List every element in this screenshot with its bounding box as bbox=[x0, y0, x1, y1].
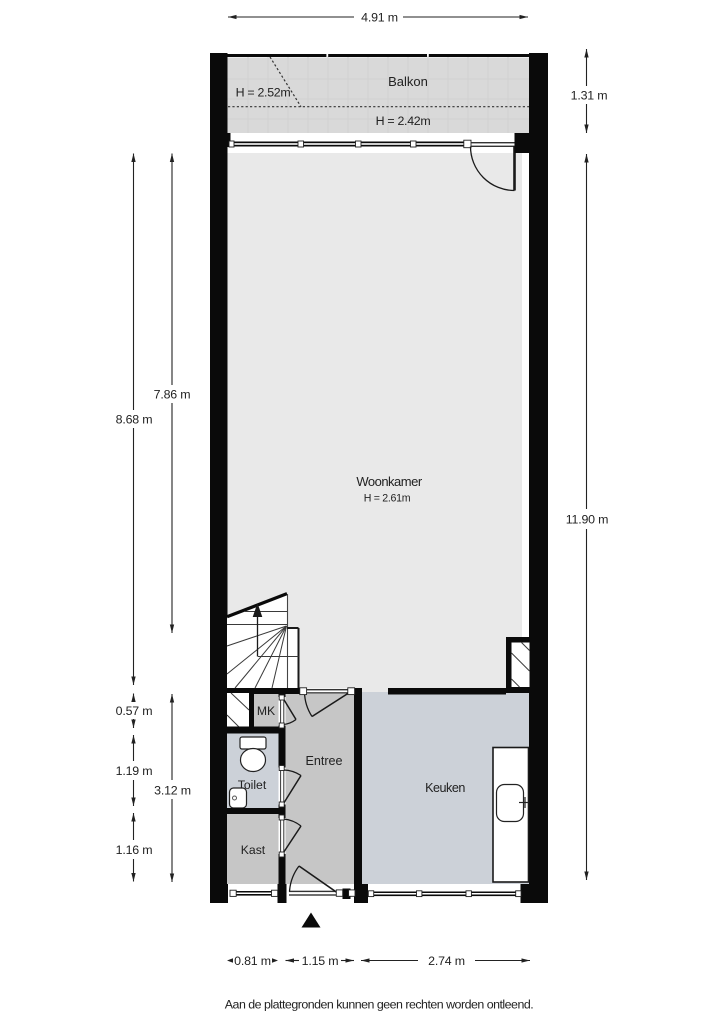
svg-text:7.86 m: 7.86 m bbox=[154, 387, 191, 401]
svg-text:Keuken: Keuken bbox=[425, 781, 465, 795]
svg-text:H = 2.61m: H = 2.61m bbox=[364, 492, 411, 504]
svg-text:H = 2.52m: H = 2.52m bbox=[236, 86, 291, 100]
svg-text:11.90 m: 11.90 m bbox=[566, 512, 608, 526]
svg-text:4.91 m: 4.91 m bbox=[361, 10, 398, 24]
svg-text:Entree: Entree bbox=[305, 754, 342, 768]
svg-text:MK: MK bbox=[257, 704, 275, 718]
svg-text:Woonkamer: Woonkamer bbox=[356, 474, 423, 489]
svg-text:2.74 m: 2.74 m bbox=[428, 954, 465, 968]
svg-text:1.15 m: 1.15 m bbox=[302, 954, 339, 968]
svg-text:Balkon: Balkon bbox=[388, 74, 428, 89]
svg-text:1.31 m: 1.31 m bbox=[571, 88, 608, 102]
svg-text:Kast: Kast bbox=[241, 843, 266, 857]
svg-text:8.68 m: 8.68 m bbox=[116, 412, 153, 426]
svg-text:Aan de plattegronden kunnen ge: Aan de plattegronden kunnen geen rechten… bbox=[225, 997, 533, 1011]
svg-text:0.81 m: 0.81 m bbox=[234, 954, 271, 968]
svg-text:H = 2.42m: H = 2.42m bbox=[376, 114, 431, 128]
svg-text:1.19 m: 1.19 m bbox=[116, 764, 153, 778]
svg-text:1.16 m: 1.16 m bbox=[116, 843, 153, 857]
svg-text:0.57 m: 0.57 m bbox=[116, 704, 153, 718]
svg-text:3.12 m: 3.12 m bbox=[154, 783, 191, 797]
